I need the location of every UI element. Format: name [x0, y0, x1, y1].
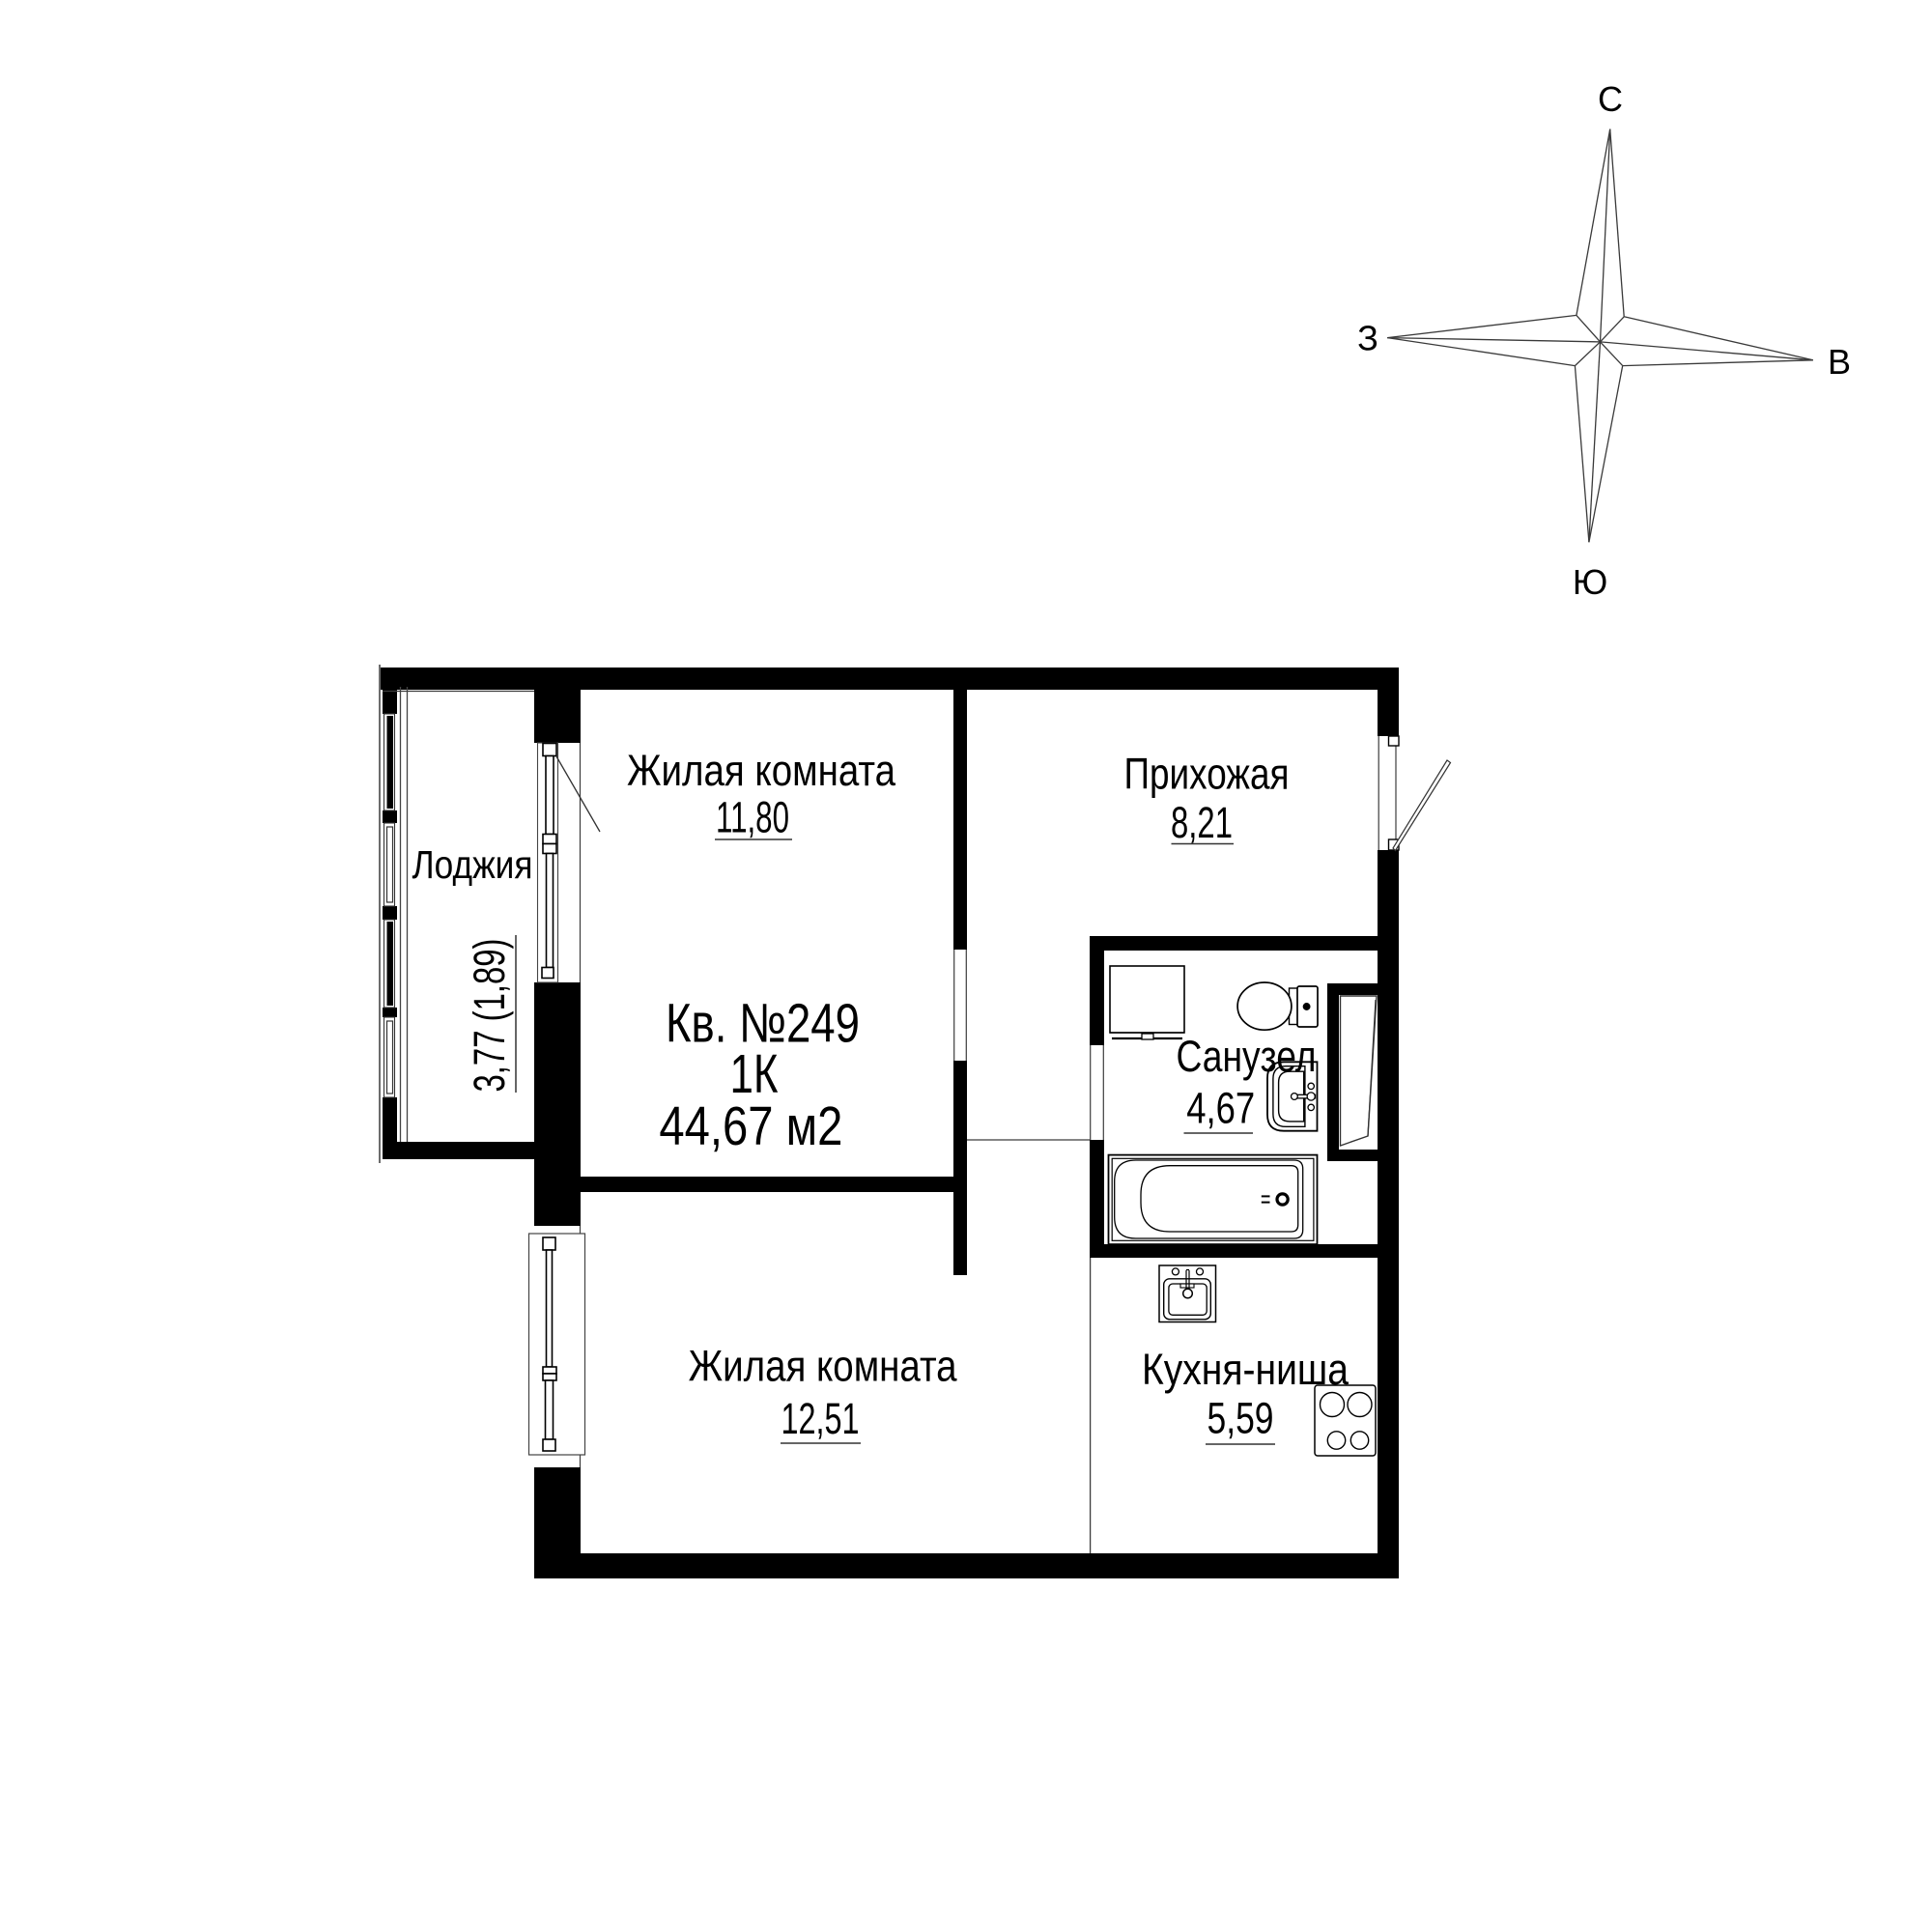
- svg-text:С: С: [1598, 79, 1623, 119]
- svg-text:В: В: [1828, 342, 1851, 382]
- svg-text:Лоджия: Лоджия: [412, 842, 533, 887]
- svg-text:12,51: 12,51: [781, 1394, 860, 1443]
- svg-text:Прихожая: Прихожая: [1124, 749, 1290, 798]
- svg-text:Жилая комната: Жилая комната: [627, 746, 896, 795]
- svg-text:Кухня-ниша: Кухня-ниша: [1142, 1345, 1350, 1394]
- svg-text:Санузел: Санузел: [1177, 1032, 1317, 1081]
- svg-text:11,80: 11,80: [716, 793, 789, 842]
- svg-text:4,67: 4,67: [1186, 1084, 1255, 1133]
- svg-text:З: З: [1357, 319, 1378, 358]
- svg-text:3,77 (1,89): 3,77 (1,89): [465, 939, 514, 1093]
- svg-text:Жилая комната: Жилая комната: [689, 1342, 958, 1391]
- svg-text:5,59: 5,59: [1207, 1394, 1274, 1443]
- svg-text:8,21: 8,21: [1171, 798, 1233, 847]
- svg-text:Ю: Ю: [1573, 562, 1607, 602]
- svg-text:44,67 м2: 44,67 м2: [659, 1095, 842, 1157]
